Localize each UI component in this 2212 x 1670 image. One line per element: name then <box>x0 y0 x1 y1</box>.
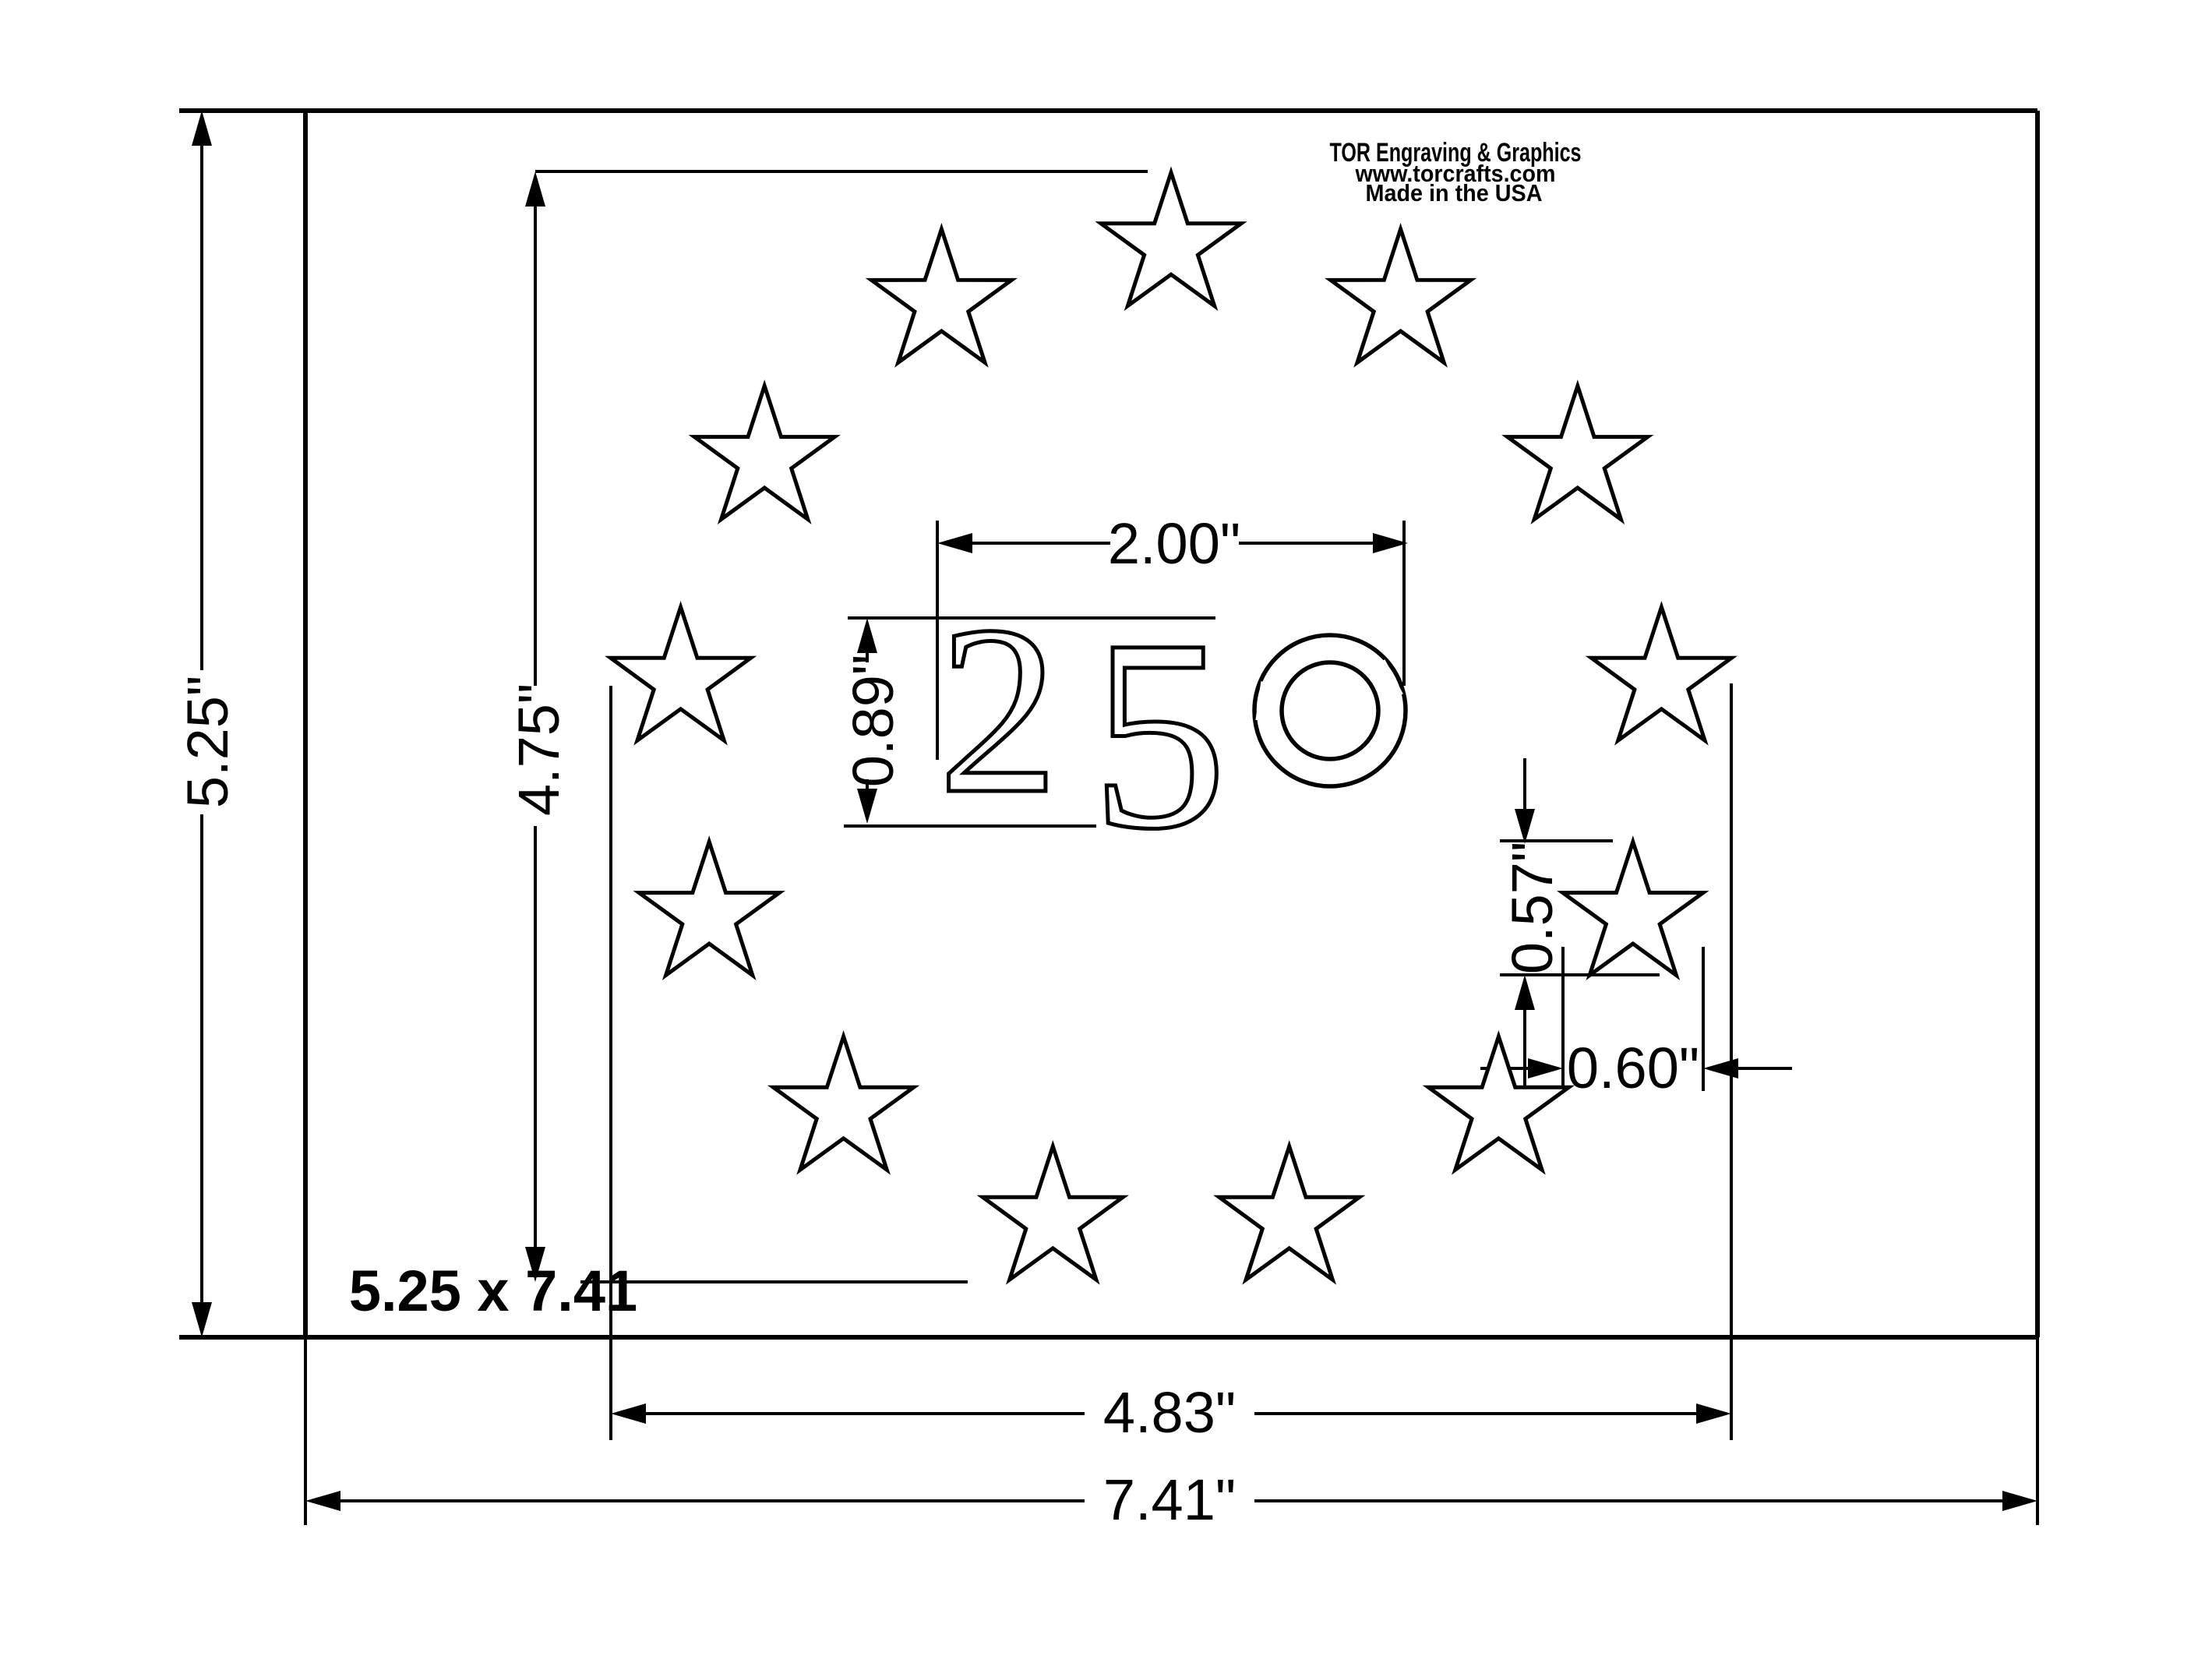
star-outline <box>1331 229 1471 362</box>
dimension-arrowhead <box>2002 1491 2037 1511</box>
dimension-arrowhead <box>857 618 877 653</box>
numeral-0-inner-contour <box>1282 662 1378 759</box>
dimension-arrowhead <box>611 1403 646 1424</box>
dim-label-number-height: 0.89" <box>841 655 905 787</box>
star-outline <box>1428 1036 1568 1170</box>
dim-label-star-ring-width: 4.83" <box>1103 1380 1236 1445</box>
stencil-diagram-svg: 2 5 5.25" 4.75" 0.89" 0.57" 2.00" 0.60" … <box>0 0 2212 1670</box>
stencil-number-250: 2 5 <box>938 577 1406 885</box>
dimension-arrowhead <box>857 789 877 824</box>
star-outline <box>774 1036 914 1170</box>
star-outline <box>1101 172 1241 305</box>
dimension-arrowhead <box>305 1491 340 1511</box>
dimension-arrowhead <box>1703 1058 1738 1079</box>
dimension-arrowhead <box>1528 1058 1563 1079</box>
numeral-0 <box>1254 635 1406 786</box>
dim-label-star-height: 0.57" <box>1500 842 1565 974</box>
dimension-arrowhead <box>525 171 545 207</box>
dim-label-number-width: 2.00" <box>1108 511 1240 576</box>
star-outline <box>1563 842 1703 975</box>
dim-label-star-width: 0.60" <box>1567 1036 1699 1100</box>
dim-label-overall-width: 7.41" <box>1103 1467 1236 1532</box>
dimension-arrowhead <box>192 111 212 146</box>
size-note-label: 5.25 x 7.41 <box>349 1259 637 1323</box>
star-outline <box>1508 386 1648 519</box>
star-outline <box>983 1146 1123 1280</box>
star-outline <box>1591 607 1731 740</box>
dim-label-overall-height: 5.25" <box>175 676 240 808</box>
dimension-arrowhead <box>1515 809 1535 844</box>
star-outline <box>1219 1146 1360 1280</box>
dimension-arrowhead <box>1515 975 1535 1010</box>
dim-label-star-ring-height: 4.75" <box>506 683 571 816</box>
star-outline <box>694 386 834 519</box>
star-outline <box>871 229 1011 362</box>
title-block: TOR Engraving & Graphics www.torcrafts.c… <box>1330 138 1582 207</box>
title-line-origin: Made in the USA <box>1366 179 1543 207</box>
numeral-5: 5 <box>1091 583 1227 885</box>
star-outline <box>639 842 779 975</box>
stencil-dimension-drawing: 2 5 5.25" 4.75" 0.89" 0.57" 2.00" 0.60" … <box>0 0 2212 1670</box>
dimension-arrowhead <box>192 1302 212 1337</box>
dimension-arrowhead <box>1696 1403 1731 1424</box>
star-outline <box>611 607 751 740</box>
dimension-arrowhead <box>937 533 972 553</box>
numeral-2: 2 <box>938 577 1059 844</box>
